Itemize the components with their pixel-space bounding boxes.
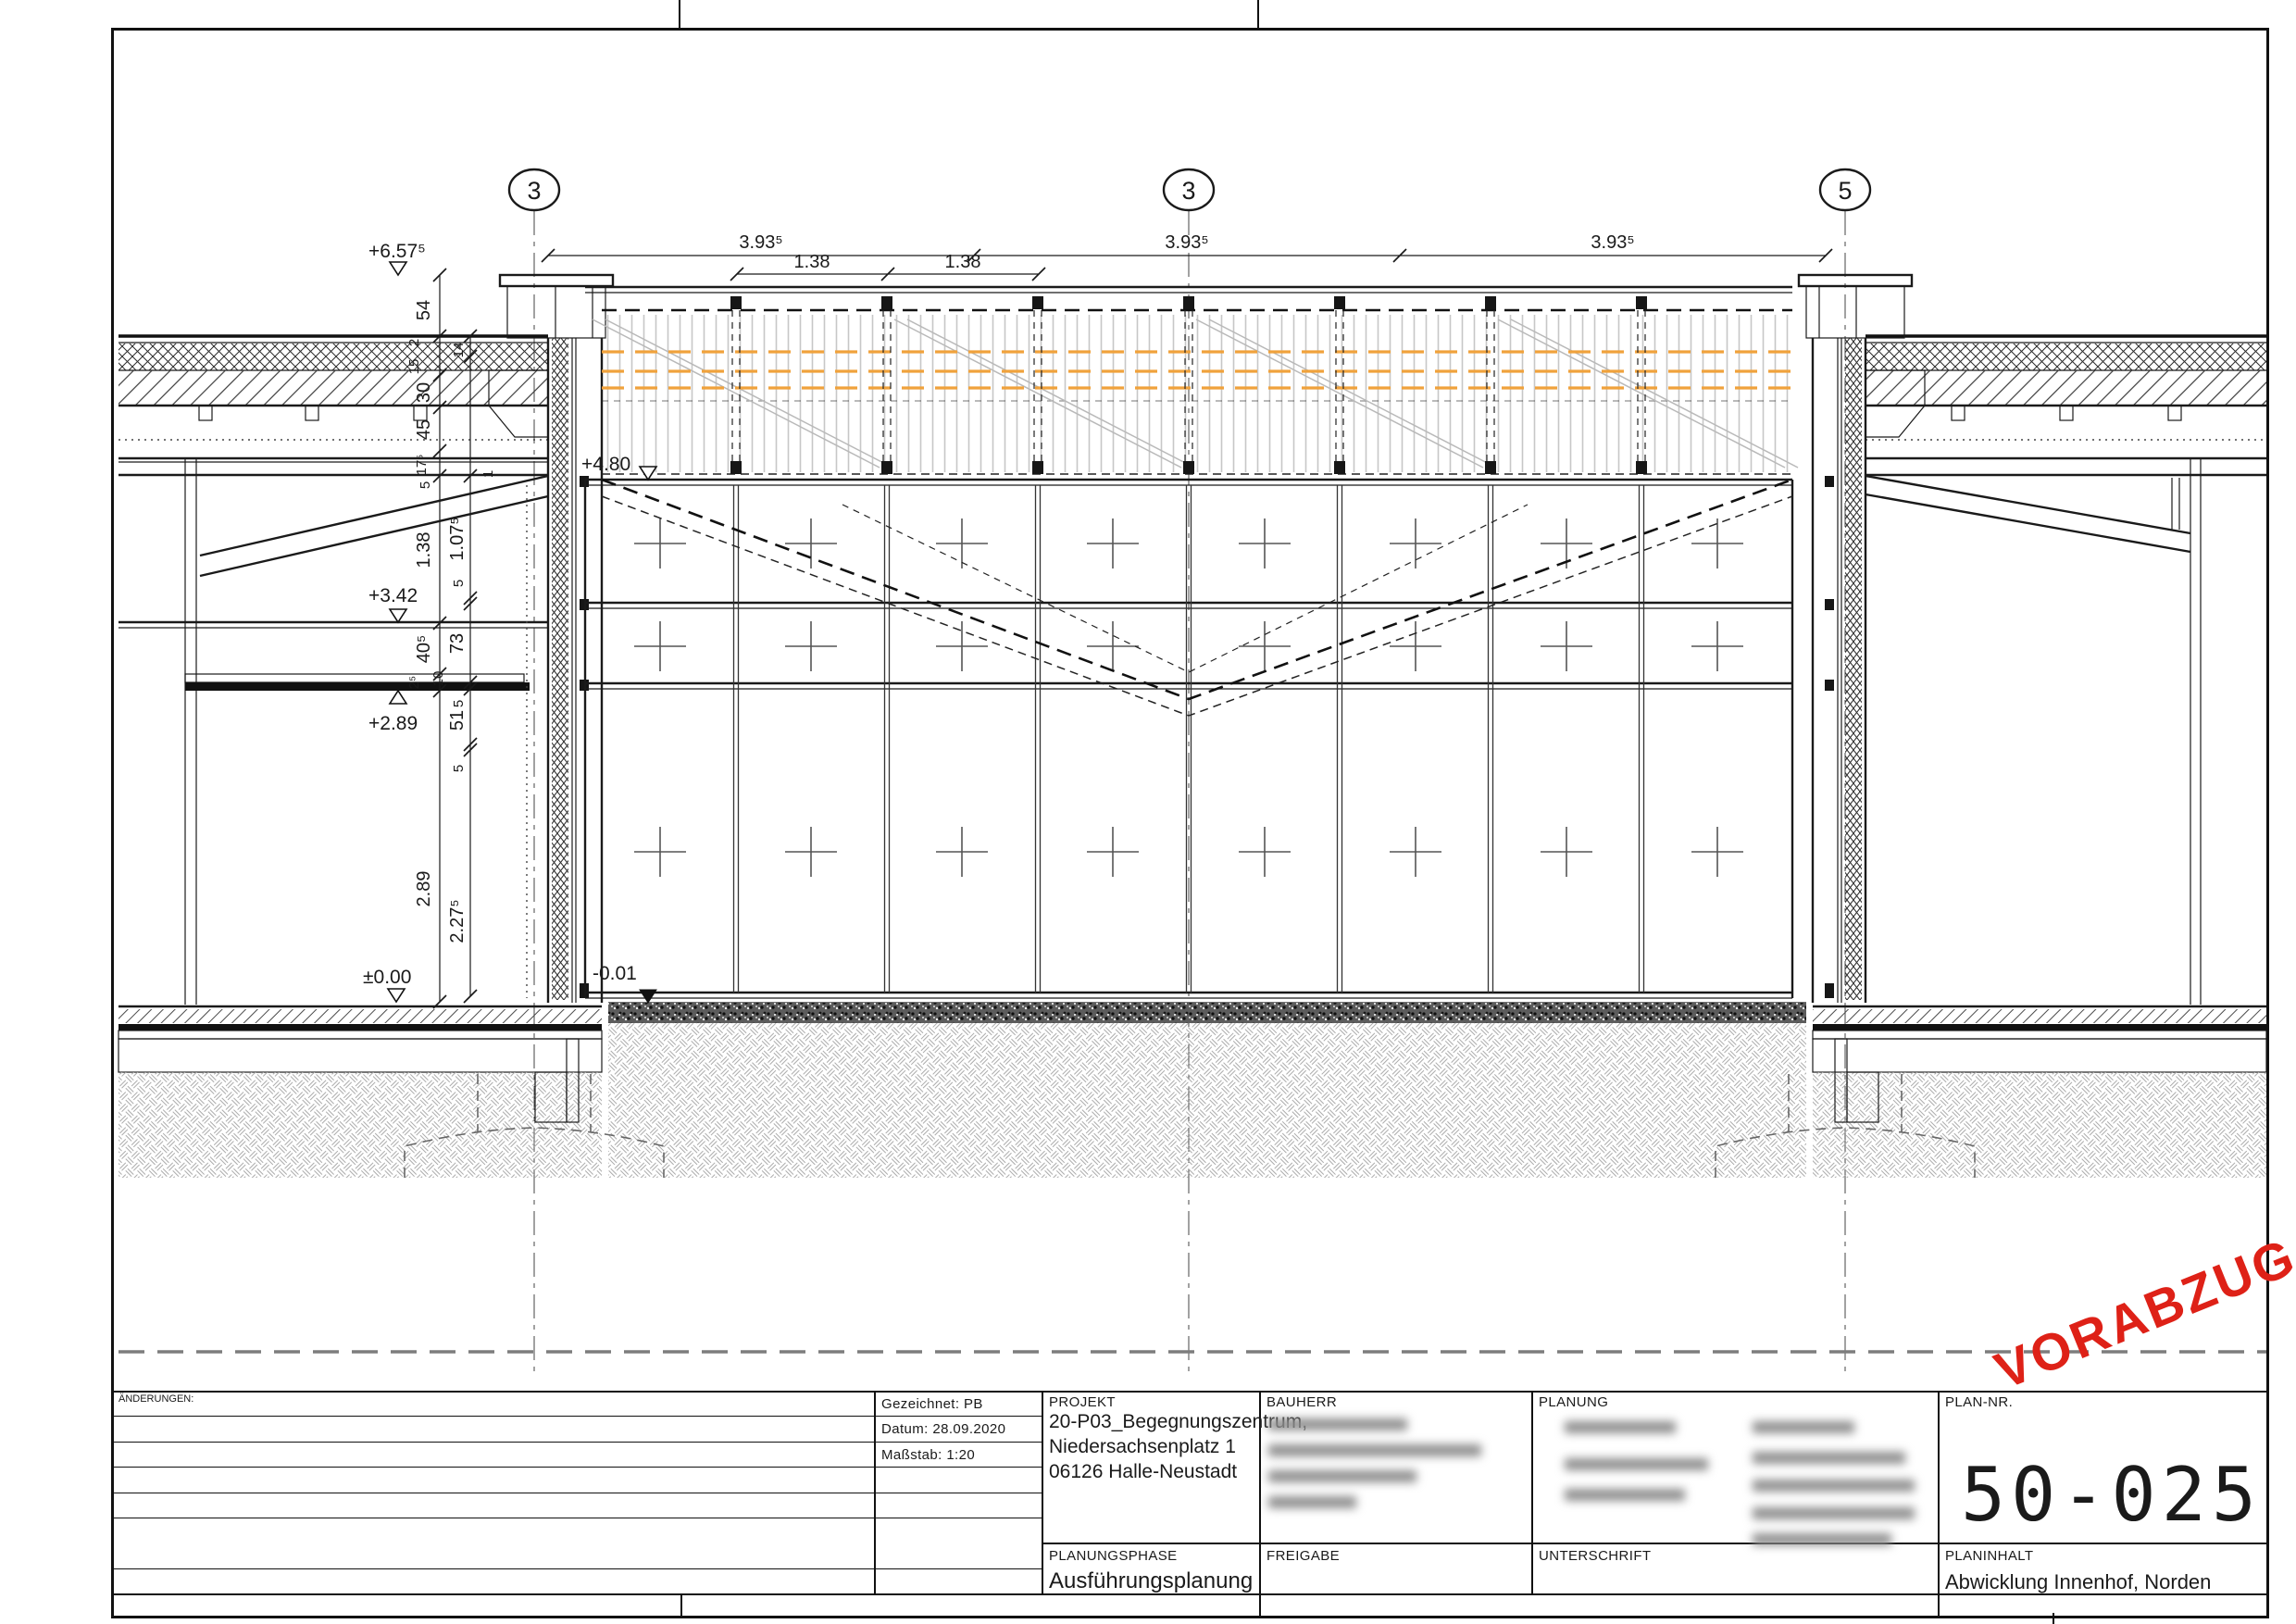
redacted-line [1268,1470,1416,1482]
sheet-border [111,28,2269,1618]
redacted-line [1753,1533,1891,1545]
gezeichnet-label: Gezeichnet: [881,1396,959,1412]
projekt-label: PROJEKT [1049,1394,1116,1410]
redacted-line [1565,1458,1708,1470]
massstab-label: Maßstab: [881,1447,942,1463]
massstab-row: Maßstab: 1:20 [881,1447,975,1463]
gezeichnet-value: PB [964,1396,983,1412]
planinhalt-label: PLANINHALT [1945,1548,2033,1564]
planungsphase-label: PLANUNGSPHASE [1049,1548,1178,1564]
plannr-label: PLAN-NR. [1945,1394,2013,1410]
fold-mark [1257,0,1259,28]
aenderungen-label: ÄNDERUNGEN: [119,1393,193,1405]
projekt-line: Niedersachsenplatz 1 [1049,1436,1236,1458]
unterschrift-label: UNTERSCHRIFT [1539,1548,1651,1564]
redacted-line [1753,1507,1915,1519]
datum-row: Datum: 28.09.2020 [881,1421,1005,1437]
redacted-line [1753,1421,1854,1433]
redacted-line [1753,1480,1915,1492]
fold-mark [679,0,680,28]
redacted-line [1268,1444,1481,1456]
gezeichnet-row: Gezeichnet: PB [881,1396,983,1412]
drawing-sheet: 3 3 5 3.93⁵ 3.93⁵ 3.93⁵ 1.38 1.38 [0,0,2296,1624]
projekt-line: 06126 Halle-Neustadt [1049,1461,1237,1483]
redacted-line [1753,1452,1905,1464]
massstab-value: 1:20 [946,1447,975,1463]
planungsphase-value: Ausführungsplanung [1049,1568,1253,1594]
bauherr-label: BAUHERR [1267,1394,1337,1410]
redacted-line [1268,1418,1407,1430]
datum-label: Datum: [881,1421,929,1437]
redacted-line [1565,1489,1685,1501]
fold-mark [2053,1613,2054,1624]
planinhalt-value: Abwicklung Innenhof, Norden [1945,1570,2211,1594]
redacted-line [1268,1496,1356,1508]
redacted-line [1565,1421,1676,1433]
plan-number: 50-025 [1961,1452,2262,1538]
freigabe-label: FREIGABE [1267,1548,1340,1564]
planung-label: PLANUNG [1539,1394,1608,1410]
datum-value: 28.09.2020 [932,1421,1005,1437]
